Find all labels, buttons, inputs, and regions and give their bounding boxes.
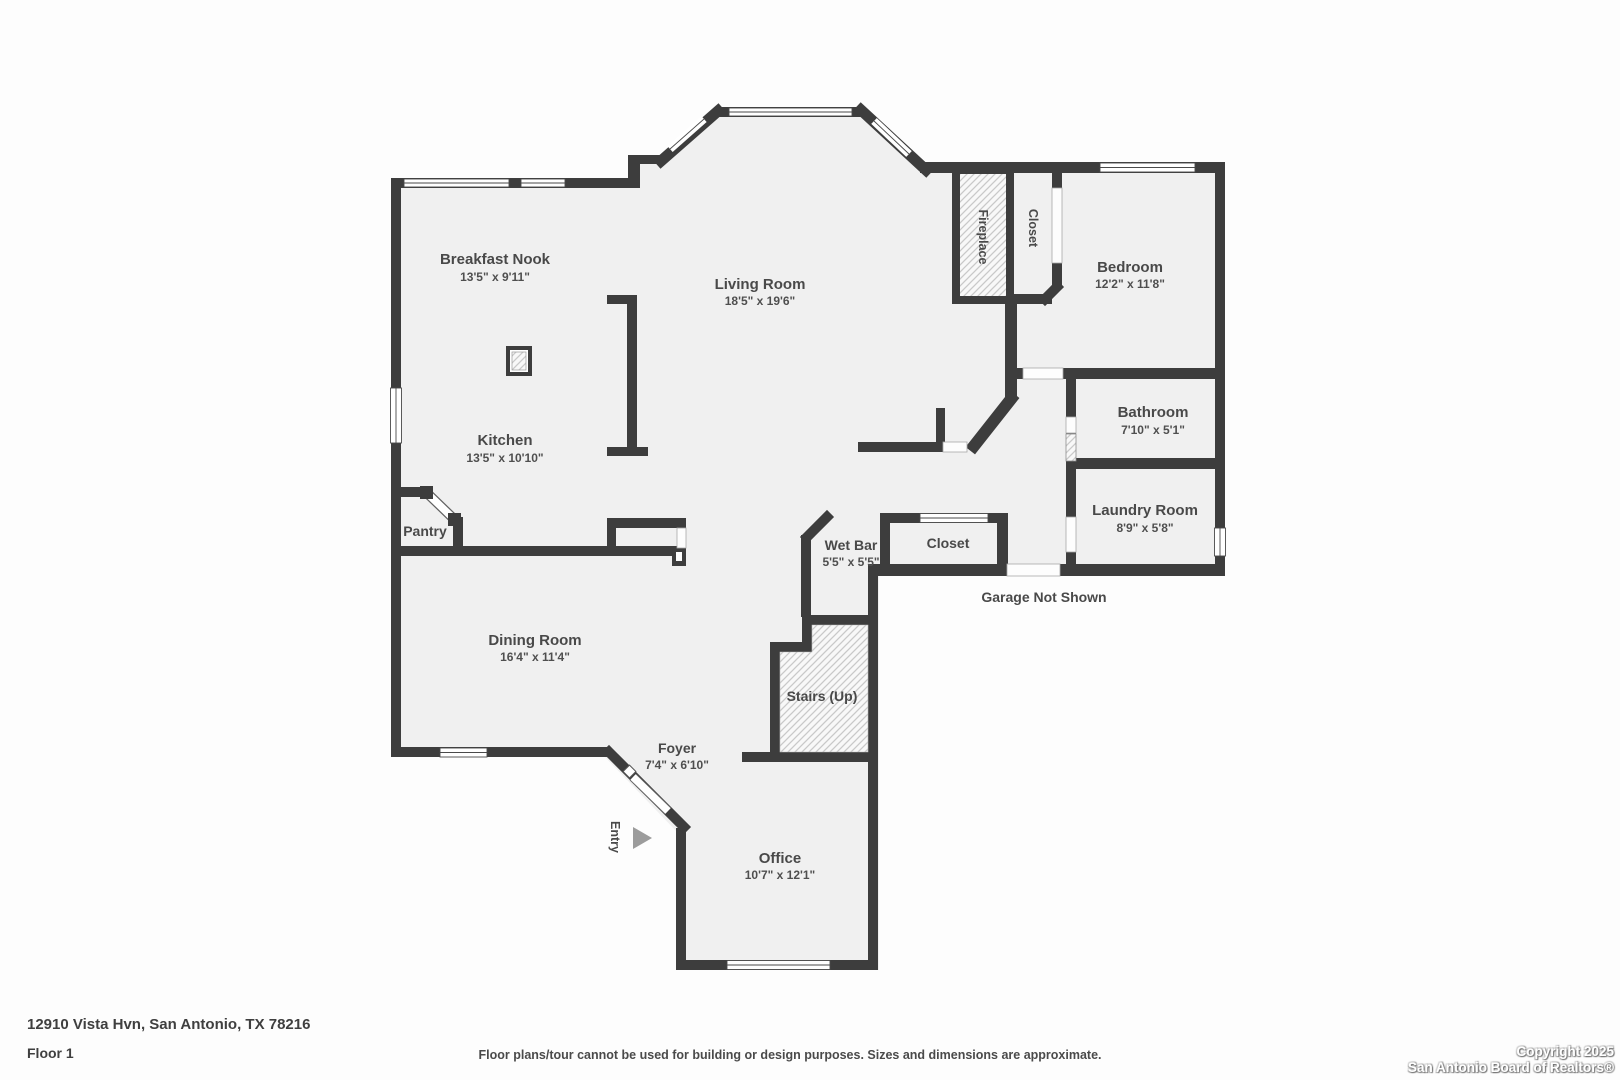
wall-segment (676, 828, 686, 970)
room-label-bathroom: Bathroom (1118, 404, 1189, 421)
room-label-pantry: Pantry (403, 523, 447, 539)
window (391, 388, 402, 443)
copyright-notice: Copyright 2025 San Antonio Board of Real… (1408, 1044, 1614, 1076)
wall-segment (1063, 368, 1225, 379)
room-dims-bedroom: 12'2" x 11'8" (1095, 277, 1165, 291)
room-label-foyer: Foyer (658, 740, 697, 756)
room-dims-kitchen: 13'5" x 10'10" (466, 451, 543, 465)
wall-segment (391, 546, 686, 556)
pocket-door-hatch (1066, 434, 1076, 461)
wall-segment (607, 518, 616, 555)
room-label-wet-bar: Wet Bar (825, 537, 878, 553)
room-label-office: Office (759, 850, 802, 867)
room-label-dining: Dining Room (488, 632, 581, 649)
copyright-line2: San Antonio Board of Realtors® (1408, 1060, 1614, 1076)
floor-indicator: Floor 1 (27, 1045, 74, 1061)
window (727, 961, 830, 970)
room-label-kitchen: Kitchen (477, 432, 532, 449)
room-label-closet-hall: Closet (927, 535, 970, 551)
copyright-line1: Copyright 2025 (1408, 1044, 1614, 1060)
wall-segment (1060, 564, 1225, 576)
door-opening (1066, 517, 1076, 552)
wall-segment (858, 442, 943, 452)
door-opening (676, 552, 682, 561)
window (440, 748, 487, 757)
window (1215, 528, 1226, 556)
wall-segment (1005, 294, 1017, 398)
wall-segment (1005, 368, 1023, 379)
room-label-laundry: Laundry Room (1092, 502, 1198, 519)
window (920, 514, 988, 523)
door-opening (943, 442, 967, 452)
wall-segment (770, 642, 780, 752)
room-dims-laundry: 8'9" x 5'8" (1116, 521, 1173, 535)
room-label-living-room: Living Room (715, 276, 806, 293)
room-label-breakfast-nook: Breakfast Nook (440, 251, 551, 268)
window (521, 179, 565, 187)
floor-plan: Breakfast Nook 13'5" x 9'11" Living Room… (0, 0, 1620, 1080)
kitchen-island (506, 346, 532, 376)
wall-segment (801, 535, 811, 617)
disclaimer-text: Floor plans/tour cannot be used for buil… (478, 1048, 1101, 1062)
bay-window-center (729, 108, 852, 116)
wall-segment (1066, 552, 1076, 576)
door-opening (1023, 368, 1063, 379)
wall-segment (607, 447, 648, 456)
room-dims-foyer: 7'4" x 6'10" (645, 758, 709, 772)
wall-segment (391, 747, 611, 757)
wall-segment (627, 295, 637, 456)
room-label-entry: Entry (608, 821, 622, 853)
wall-segment (742, 752, 878, 762)
property-address: 12910 Vista Hvn, San Antonio, TX 78216 (27, 1016, 310, 1033)
entry-arrow-icon (633, 827, 652, 849)
room-label-closet-bedroom: Closet (1026, 209, 1040, 248)
room-dims-living-room: 18'5" x 19'6" (725, 294, 795, 308)
window (404, 179, 509, 187)
wall-segment (868, 576, 878, 970)
wall-segment (1066, 379, 1076, 417)
room-dims-wet-bar: 5'5" x 5'5" (822, 555, 879, 569)
room-dims-bathroom: 7'10" x 5'1" (1121, 423, 1185, 437)
wall-segment (802, 615, 878, 625)
wall-segment (677, 518, 686, 528)
door-opening (1007, 564, 1060, 576)
wall-segment (1052, 173, 1062, 188)
window (1100, 163, 1195, 172)
island-hatch (512, 352, 526, 370)
room-label-stairs: Stairs (Up) (787, 688, 858, 704)
room-dims-breakfast-nook: 13'5" x 9'11" (460, 270, 530, 284)
garage-note: Garage Not Shown (981, 589, 1106, 605)
room-label-fireplace: Fireplace (976, 210, 990, 265)
room-label-bedroom: Bedroom (1097, 259, 1163, 276)
wall-segment (880, 513, 890, 576)
room-dims-dining: 16'4" x 11'4" (500, 650, 570, 664)
door-opening (677, 528, 686, 548)
wall-segment (1066, 458, 1225, 469)
wall-segment (607, 518, 686, 528)
door-opening (1066, 417, 1076, 433)
wall-segment (391, 178, 401, 757)
door-opening (1052, 188, 1062, 263)
room-dims-office: 10'7" x 12'1" (745, 868, 815, 882)
